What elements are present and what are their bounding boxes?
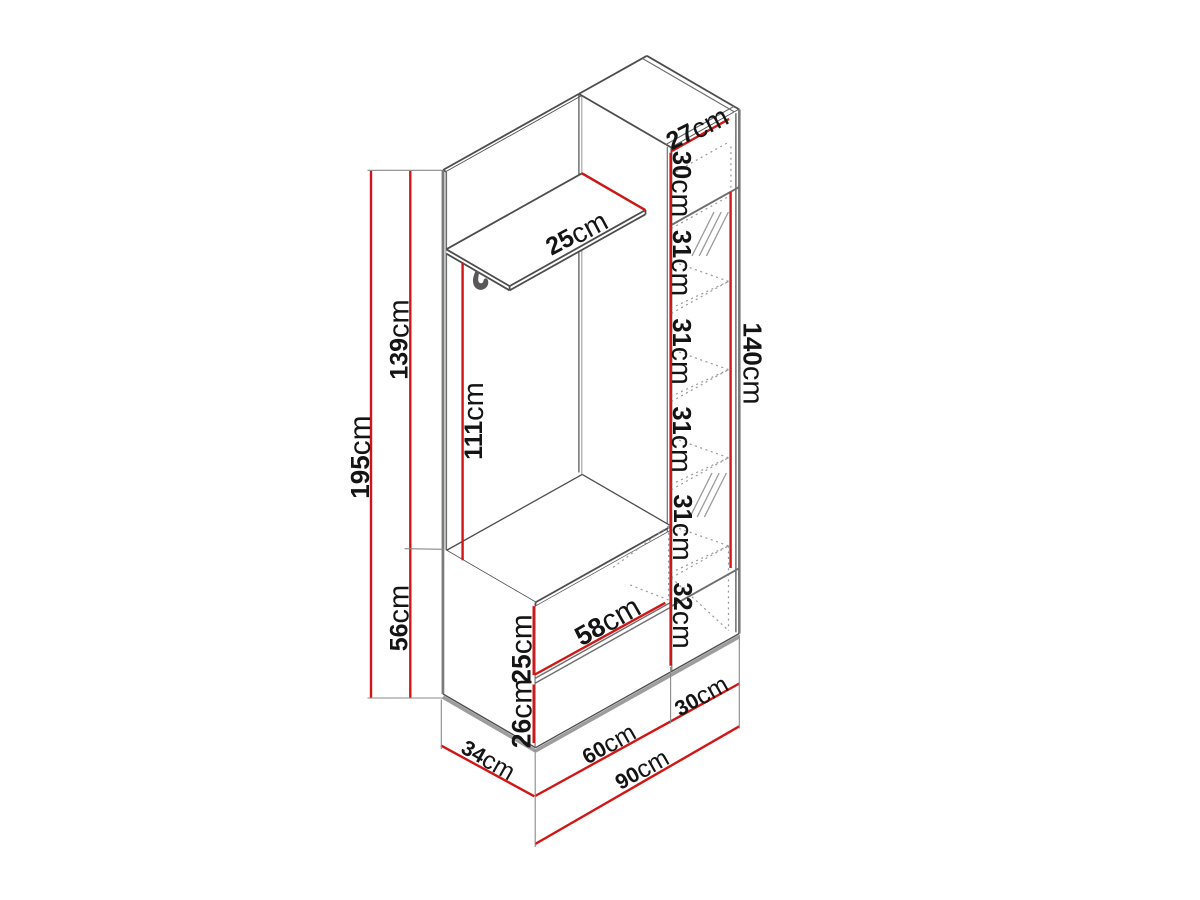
svg-text:30cm: 30cm	[665, 151, 697, 217]
svg-text:140cm: 140cm	[737, 322, 769, 404]
svg-text:31cm: 31cm	[665, 230, 697, 296]
svg-text:139cm: 139cm	[384, 299, 416, 379]
svg-text:31cm: 31cm	[666, 494, 698, 560]
svg-text:32cm: 32cm	[666, 582, 698, 648]
svg-text:111cm: 111cm	[458, 382, 490, 460]
svg-text:31cm: 31cm	[665, 406, 697, 472]
svg-text:56cm: 56cm	[384, 585, 416, 651]
svg-text:31cm: 31cm	[665, 318, 697, 384]
svg-text:25cm: 25cm	[505, 614, 538, 683]
svg-text:26cm: 26cm	[505, 679, 538, 748]
svg-text:195cm: 195cm	[344, 415, 377, 498]
